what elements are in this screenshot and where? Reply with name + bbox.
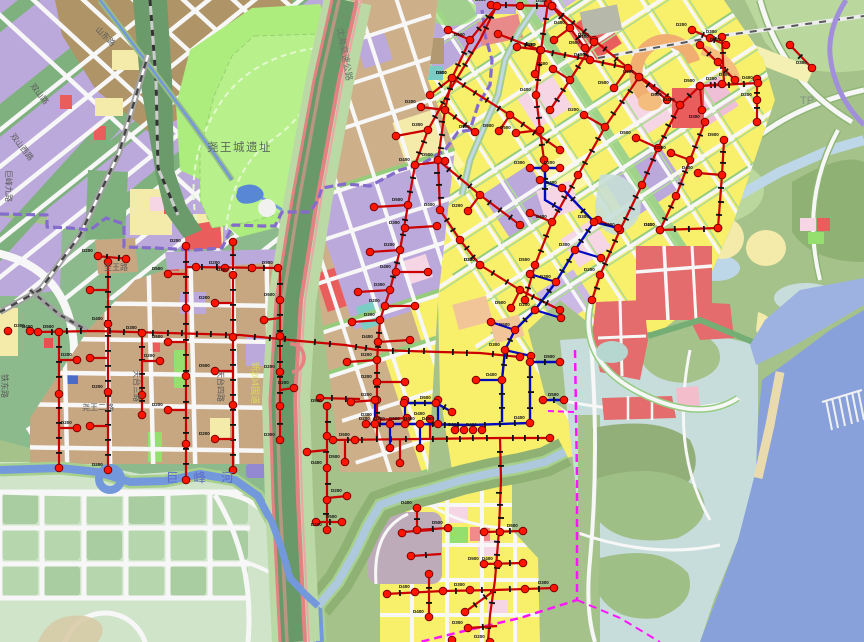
svg-text:D400: D400: [520, 87, 531, 92]
svg-text:D500: D500: [432, 520, 443, 525]
svg-text:D500: D500: [519, 257, 530, 262]
svg-text:D500: D500: [436, 70, 447, 75]
svg-text:D500: D500: [199, 363, 210, 368]
svg-text:D500: D500: [459, 124, 470, 129]
svg-text:D500: D500: [544, 354, 555, 359]
svg-text:D400: D400: [404, 416, 415, 421]
svg-text:D500: D500: [152, 334, 163, 339]
svg-text:D200: D200: [359, 416, 370, 421]
svg-text:D500: D500: [311, 398, 322, 403]
svg-text:D500: D500: [326, 514, 337, 519]
svg-text:D300: D300: [126, 325, 137, 330]
svg-text:D200: D200: [170, 238, 181, 243]
svg-text:D300: D300: [475, 0, 486, 2]
svg-text:D400: D400: [399, 584, 410, 589]
svg-text:D200: D200: [474, 634, 485, 639]
svg-text:D300: D300: [364, 312, 375, 317]
svg-text:D500: D500: [548, 392, 559, 397]
svg-text:D500: D500: [43, 324, 54, 329]
svg-text:D400: D400: [742, 75, 753, 80]
svg-text:D500: D500: [708, 132, 719, 137]
svg-text:D200: D200: [264, 364, 275, 369]
svg-text:D500: D500: [264, 292, 275, 297]
svg-text:D500: D500: [339, 432, 350, 437]
svg-text:圣王路: 圣王路: [104, 262, 128, 272]
svg-text:D300: D300: [454, 582, 465, 587]
svg-text:D500: D500: [468, 556, 479, 561]
svg-text:D200: D200: [331, 488, 342, 493]
svg-text:D300: D300: [412, 122, 423, 127]
svg-text:D300: D300: [546, 180, 557, 185]
svg-text:D500: D500: [710, 37, 721, 42]
svg-text:D400: D400: [664, 97, 675, 102]
svg-text:D200: D200: [311, 522, 322, 527]
svg-text:D400: D400: [311, 460, 322, 465]
svg-text:D300: D300: [540, 274, 551, 279]
svg-text:D500: D500: [651, 92, 662, 97]
svg-text:D200: D200: [741, 92, 752, 97]
svg-text:天台四路: 天台四路: [216, 370, 226, 402]
svg-text:巨峰河: 巨峰河: [166, 471, 249, 485]
svg-text:D200: D200: [623, 69, 634, 74]
svg-text:D300: D300: [796, 60, 807, 65]
svg-text:D400: D400: [422, 416, 433, 421]
svg-text:D300: D300: [489, 342, 500, 347]
svg-text:D500: D500: [684, 78, 695, 83]
svg-text:D200: D200: [199, 431, 210, 436]
svg-text:D500: D500: [329, 454, 340, 459]
svg-text:D500: D500: [620, 130, 631, 135]
svg-text:D300: D300: [464, 257, 475, 262]
svg-text:D500: D500: [655, 145, 666, 150]
svg-text:D500: D500: [499, 322, 510, 327]
svg-text:D300: D300: [262, 260, 273, 265]
svg-text:D400: D400: [413, 609, 424, 614]
svg-text:D200: D200: [544, 160, 555, 165]
svg-text:D400: D400: [574, 52, 585, 57]
svg-text:D300: D300: [689, 114, 700, 119]
svg-text:D300: D300: [264, 432, 275, 437]
svg-text:D200: D200: [199, 295, 210, 300]
svg-text:D300: D300: [389, 220, 400, 225]
svg-text:D200: D200: [361, 374, 372, 379]
svg-text:D200: D200: [61, 420, 72, 425]
svg-text:D300: D300: [374, 416, 385, 421]
svg-text:D200: D200: [568, 107, 579, 112]
svg-text:D400: D400: [380, 264, 391, 269]
svg-text:巨峰九路: 巨峰九路: [4, 170, 14, 202]
svg-text:D200: D200: [144, 353, 155, 358]
svg-text:D200: D200: [706, 76, 717, 81]
svg-text:D300: D300: [538, 580, 549, 585]
svg-text:D500: D500: [392, 197, 403, 202]
svg-text:D200: D200: [466, 422, 477, 427]
svg-text:D500: D500: [500, 125, 511, 130]
svg-text:D200: D200: [92, 384, 103, 389]
svg-text:D500: D500: [495, 300, 506, 305]
svg-text:铁东路: 铁东路: [0, 374, 10, 398]
svg-text:D200: D200: [676, 22, 687, 27]
svg-text:D400: D400: [644, 222, 655, 227]
svg-text:D300: D300: [448, 422, 459, 427]
svg-text:D400: D400: [554, 20, 565, 25]
svg-text:D400: D400: [401, 500, 412, 505]
svg-text:D500: D500: [569, 40, 580, 45]
svg-text:D300: D300: [514, 160, 525, 165]
svg-text:D500: D500: [454, 32, 465, 37]
svg-text:D400: D400: [486, 372, 497, 377]
svg-text:D300: D300: [217, 267, 228, 272]
svg-text:D400: D400: [482, 556, 493, 561]
svg-text:D400: D400: [537, 61, 548, 66]
svg-text:D200: D200: [369, 298, 380, 303]
svg-text:D200: D200: [278, 380, 289, 385]
svg-text:D400: D400: [536, 214, 547, 219]
svg-text:D200: D200: [584, 267, 595, 272]
svg-text:D500: D500: [422, 152, 433, 157]
svg-text:D500: D500: [389, 416, 400, 421]
svg-text:D200: D200: [405, 99, 416, 104]
svg-text:D200: D200: [152, 402, 163, 407]
svg-text:D200: D200: [525, 42, 536, 47]
svg-text:D400: D400: [424, 202, 435, 207]
svg-text:D200: D200: [361, 392, 372, 397]
svg-text:D400: D400: [362, 334, 373, 339]
svg-text:D400: D400: [399, 157, 410, 162]
svg-text:D200: D200: [209, 260, 220, 265]
svg-text:D200: D200: [361, 352, 372, 357]
svg-text:D200: D200: [452, 203, 463, 208]
svg-text:D200: D200: [92, 462, 103, 467]
svg-text:D300: D300: [452, 620, 463, 625]
svg-text:D400: D400: [92, 316, 103, 321]
svg-text:D200: D200: [384, 242, 395, 247]
svg-text:D400: D400: [604, 222, 615, 227]
svg-text:D300: D300: [559, 242, 570, 247]
svg-text:D500: D500: [152, 266, 163, 271]
svg-text:D300: D300: [706, 29, 717, 34]
svg-text:D400: D400: [536, 0, 547, 3]
svg-text:D500: D500: [420, 395, 431, 400]
svg-text:D500: D500: [507, 523, 518, 528]
svg-text:D200: D200: [519, 302, 530, 307]
svg-text:尧王二路: 尧王二路: [82, 402, 114, 412]
svg-text:D500: D500: [578, 34, 589, 39]
svg-text:D400: D400: [514, 415, 525, 420]
svg-text:D300: D300: [14, 323, 25, 328]
svg-text:D300: D300: [719, 72, 730, 77]
svg-text:D500: D500: [483, 123, 494, 128]
svg-text:D200: D200: [61, 352, 72, 357]
svg-text:尧王城遗址: 尧王城遗址: [207, 140, 272, 154]
svg-text:天台三路: 天台三路: [132, 370, 142, 402]
svg-text:D500: D500: [598, 80, 609, 85]
svg-text:D300: D300: [374, 282, 385, 287]
svg-text:D200: D200: [82, 248, 93, 253]
svg-text:D400: D400: [682, 165, 693, 170]
svg-text:D300: D300: [578, 214, 589, 219]
